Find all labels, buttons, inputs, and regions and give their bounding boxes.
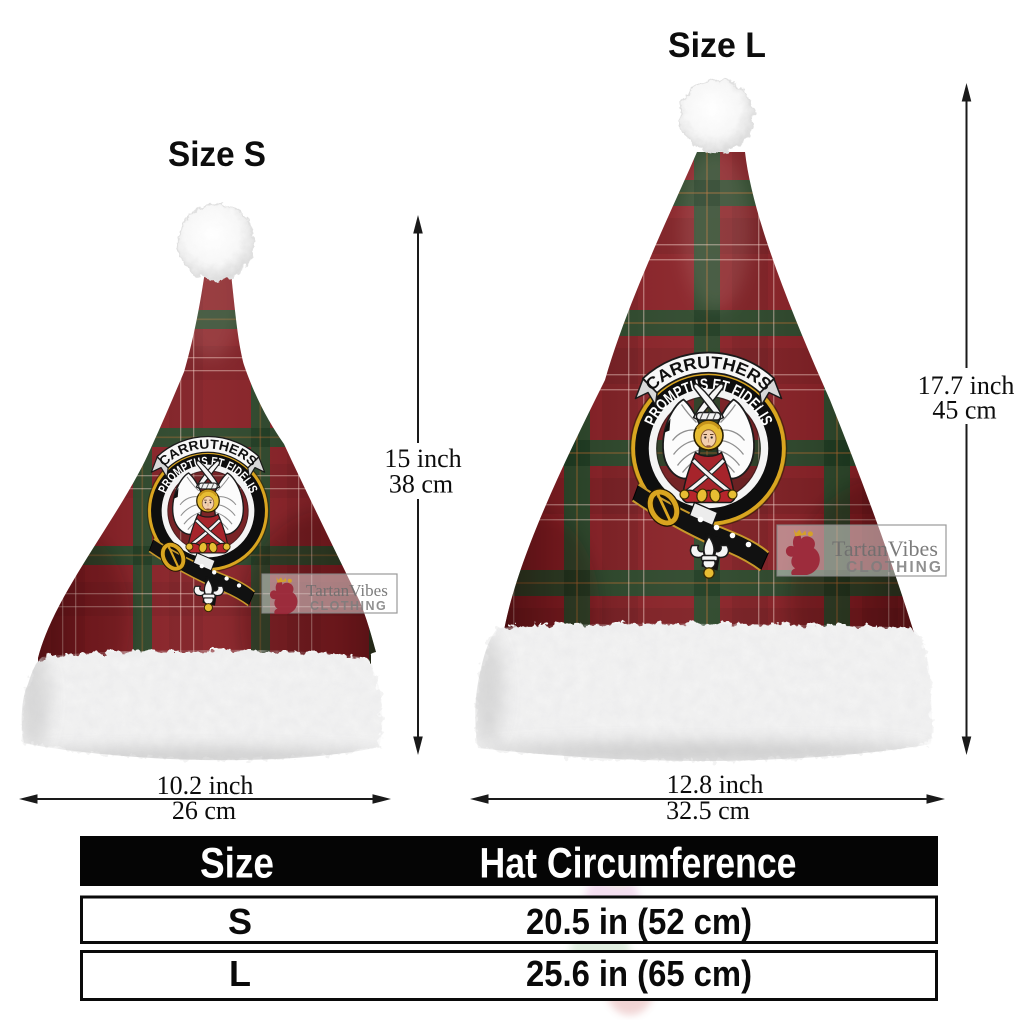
svg-text:Size: Size xyxy=(200,840,274,888)
svg-text:Hat Circumference: Hat Circumference xyxy=(480,840,797,888)
svg-text:Size L: Size L xyxy=(668,26,766,65)
svg-text:20.5 in (52 cm): 20.5 in (52 cm) xyxy=(526,901,752,942)
svg-text:CLOTHING: CLOTHING xyxy=(846,559,943,576)
svg-text:CLOTHING: CLOTHING xyxy=(310,599,387,613)
svg-text:38 cm: 38 cm xyxy=(389,470,453,499)
svg-text:TartanVibes: TartanVibes xyxy=(306,581,388,600)
svg-text:45 cm: 45 cm xyxy=(932,396,996,425)
svg-text:Size S: Size S xyxy=(168,135,266,174)
svg-text:TartanVibes: TartanVibes xyxy=(832,536,938,561)
svg-text:S: S xyxy=(228,901,252,942)
svg-text:32.5 cm: 32.5 cm xyxy=(666,796,750,825)
svg-text:26 cm: 26 cm xyxy=(172,796,236,825)
svg-text:12.8 inch: 12.8 inch xyxy=(667,770,764,799)
svg-text:25.6 in (65 cm): 25.6 in (65 cm) xyxy=(526,953,752,994)
svg-text:L: L xyxy=(229,953,251,994)
